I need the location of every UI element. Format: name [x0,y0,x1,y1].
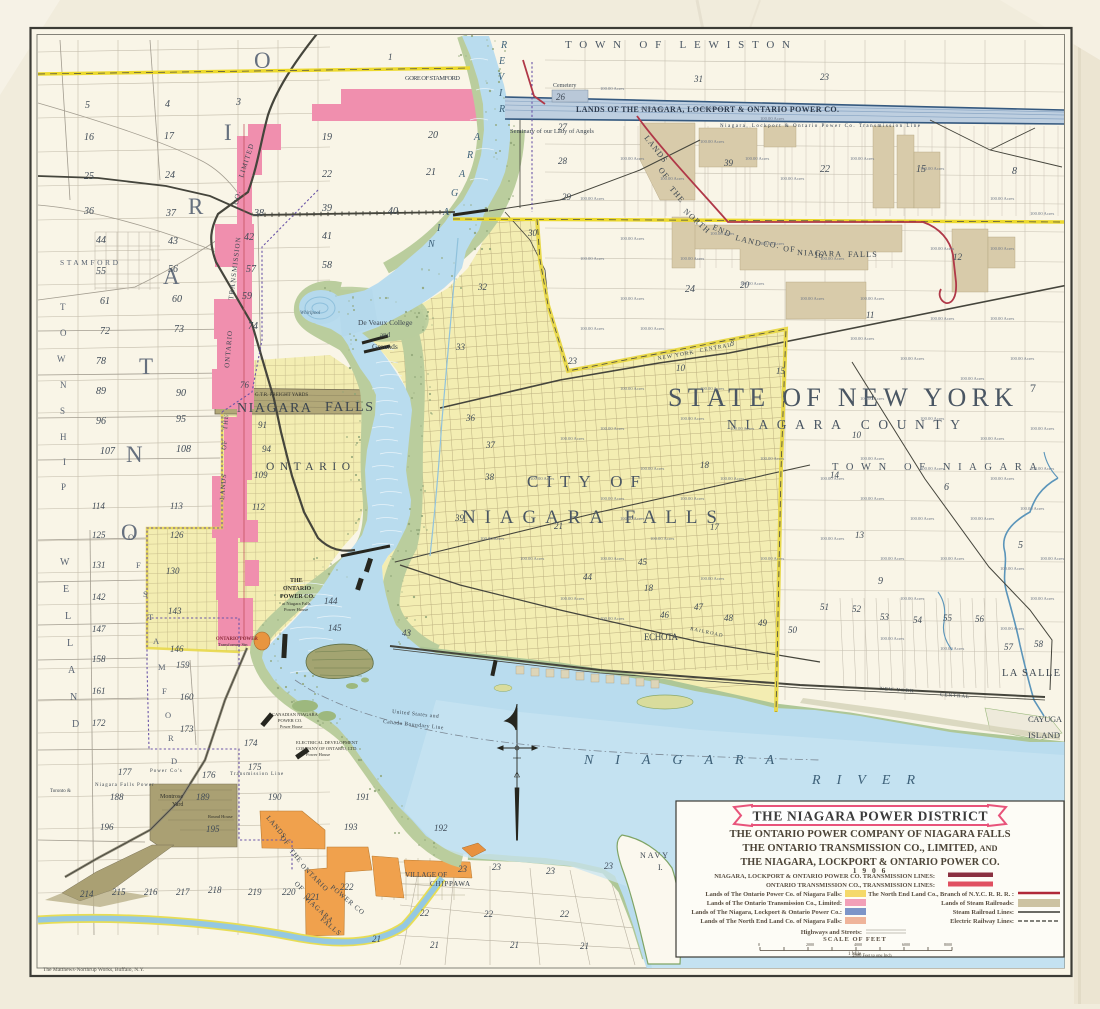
svg-text:Toronto &: Toronto & [50,789,71,794]
svg-text:100.00 Acres: 100.00 Acres [880,556,904,561]
svg-text:A: A [473,132,481,143]
svg-text:40: 40 [388,206,398,217]
svg-text:78: 78 [96,356,106,367]
svg-text:F: F [162,686,167,696]
svg-text:36: 36 [465,413,476,423]
svg-text:100.00 Acres: 100.00 Acres [1000,626,1024,631]
svg-text:A: A [153,636,160,646]
svg-text:21: 21 [554,521,563,531]
svg-text:5: 5 [1018,540,1023,551]
svg-text:100.00 Acres: 100.00 Acres [640,106,664,111]
svg-text:100.00 Acres: 100.00 Acres [620,386,644,391]
svg-text:100.00 Acres: 100.00 Acres [745,156,769,161]
svg-text:CHIPPAWA: CHIPPAWA [430,880,470,888]
svg-text:100.00 Acres: 100.00 Acres [960,376,984,381]
svg-text:N: N [60,380,67,390]
svg-text:24: 24 [685,284,695,295]
svg-text:100.00 Acres: 100.00 Acres [820,476,844,481]
svg-text:214: 214 [80,889,94,899]
svg-text:109: 109 [254,470,268,480]
svg-text:8000: 8000 [944,942,952,947]
svg-text:9: 9 [878,576,883,587]
svg-text:Power House: Power House [280,724,303,729]
svg-text:19: 19 [322,132,332,143]
svg-text:P: P [61,482,66,492]
svg-text:108: 108 [176,444,191,455]
svg-text:100.00 Acres: 100.00 Acres [700,576,724,581]
svg-text:217: 217 [176,887,190,897]
svg-text:4000: 4000 [854,942,862,947]
svg-text:Seminary of our Lady of Angels: Seminary of our Lady of Angels [510,128,594,135]
svg-text:I.: I. [658,863,663,872]
svg-text:28: 28 [558,156,568,166]
svg-text:190: 190 [268,792,282,802]
svg-text:33: 33 [455,342,466,352]
svg-text:38: 38 [253,208,264,219]
svg-text:100.00 Acres: 100.00 Acres [710,231,734,236]
svg-text:6000: 6000 [902,942,910,947]
svg-text:3: 3 [235,97,241,108]
svg-text:Yard: Yard [172,802,183,808]
svg-text:De Veaux College: De Veaux College [358,318,413,327]
svg-text:at Niagara Falls: at Niagara Falls [282,601,311,606]
svg-text:O: O [128,532,134,542]
svg-text:E: E [63,584,69,595]
svg-text:THE ONTARIO TRANSMISSION CO.,: THE ONTARIO TRANSMISSION CO., LIMITED, A… [743,842,998,854]
svg-text:100.00 Acres: 100.00 Acres [600,556,624,561]
svg-text:S: S [60,406,65,416]
svg-text:24: 24 [165,170,175,181]
svg-text:20: 20 [428,130,438,141]
svg-text:100.00 Acres: 100.00 Acres [680,416,704,421]
svg-text:21: 21 [510,940,519,950]
svg-text:2000 Feet to one Inch: 2000 Feet to one Inch [852,953,892,958]
svg-text:174: 174 [244,738,258,748]
svg-text:21: 21 [580,941,589,951]
svg-text:22: 22 [322,169,332,180]
svg-text:44: 44 [583,572,593,582]
svg-text:Power Co's: Power Co's [150,769,183,774]
svg-text:22: 22 [484,909,494,919]
svg-text:73: 73 [174,324,184,335]
svg-text:2000: 2000 [806,942,814,947]
svg-text:100.00 Acres: 100.00 Acres [480,536,504,541]
svg-text:72: 72 [100,326,110,337]
svg-text:R: R [498,104,505,115]
svg-text:100.00 Acres: 100.00 Acres [920,416,944,421]
svg-text:Highways and Streets:: Highways and Streets: [801,929,862,936]
svg-text:23: 23 [492,862,502,872]
svg-text:27: 27 [558,122,568,132]
svg-text:H: H [60,432,67,442]
svg-text:POWER CO.: POWER CO. [280,594,315,600]
svg-text:23: 23 [820,72,830,82]
svg-text:126: 126 [170,530,184,540]
svg-text:221: 221 [306,892,320,902]
svg-text:130: 130 [166,566,180,576]
svg-text:100.00 Acres: 100.00 Acres [760,241,784,246]
svg-text:215: 215 [112,887,126,897]
svg-text:76: 76 [240,380,250,390]
svg-text:L: L [67,638,73,649]
svg-text:195: 195 [206,824,220,834]
svg-text:100.00 Acres: 100.00 Acres [980,436,1004,441]
svg-text:146: 146 [170,644,184,654]
svg-text:100.00 Acres: 100.00 Acres [990,316,1014,321]
svg-text:R: R [168,733,174,743]
svg-text:25: 25 [84,171,94,182]
svg-text:100.00 Acres: 100.00 Acres [580,256,604,261]
svg-text:Lands of The North End Land Co: Lands of The North End Land Co. of Niaga… [700,918,842,925]
svg-text:188: 188 [110,792,124,802]
svg-text:100.00 Acres: 100.00 Acres [740,281,764,286]
svg-text:100.00 Acres: 100.00 Acres [970,516,994,521]
svg-text:N: N [70,692,77,703]
svg-text:147: 147 [92,624,106,634]
svg-text:21: 21 [372,934,381,944]
svg-text:Power House: Power House [306,752,330,757]
svg-text:100.00 Acres: 100.00 Acres [680,256,704,261]
svg-text:THE: THE [222,414,230,430]
svg-text:Transformer Stn: Transformer Stn [218,642,248,647]
svg-text:100.00 Acres: 100.00 Acres [860,396,884,401]
svg-text:55: 55 [943,613,953,623]
svg-text:W: W [57,354,66,364]
svg-text:A: A [458,169,466,180]
svg-text:ISLAND: ISLAND [1028,730,1060,740]
svg-text:100.00 Acres: 100.00 Acres [920,166,944,171]
svg-text:O: O [254,48,271,73]
svg-text:22: 22 [820,164,830,175]
svg-text:32: 32 [477,282,488,292]
svg-text:142: 142 [92,592,106,602]
svg-text:100.00 Acres: 100.00 Acres [620,156,644,161]
svg-text:100.00 Acres: 100.00 Acres [860,456,884,461]
svg-text:100.00 Acres: 100.00 Acres [660,176,684,181]
svg-text:56: 56 [975,614,985,624]
svg-text:100.00 Acres: 100.00 Acres [600,616,624,621]
svg-text:6: 6 [944,482,949,493]
svg-text:177: 177 [118,767,132,777]
svg-text:100.00 Acres: 100.00 Acres [650,536,674,541]
svg-text:100.00 Acres: 100.00 Acres [900,356,924,361]
svg-text:57: 57 [246,264,257,275]
svg-text:8: 8 [730,339,734,348]
svg-text:56: 56 [168,264,178,275]
svg-text:4: 4 [165,99,170,110]
svg-text:144: 144 [324,596,338,606]
svg-text:Transmission Line: Transmission Line [230,772,284,777]
svg-text:49: 49 [758,618,768,628]
svg-text:100.00 Acres: 100.00 Acres [1030,596,1054,601]
svg-text:159: 159 [176,660,190,670]
svg-text:31: 31 [693,74,703,84]
svg-text:1: 1 [388,52,393,62]
svg-text:18: 18 [700,460,710,470]
svg-text:100.00 Acres: 100.00 Acres [1030,211,1054,216]
svg-text:12: 12 [953,252,963,262]
svg-text:THE ONTARIO POWER COMPANY OF N: THE ONTARIO POWER COMPANY OF NIAGARA FAL… [730,828,1011,840]
svg-text:T: T [139,354,153,379]
svg-text:W: W [60,557,70,568]
svg-text:100.00 Acres: 100.00 Acres [640,326,664,331]
svg-text:Lands of The Ontario Transmiss: Lands of The Ontario Transmission Co., L… [707,900,842,907]
svg-text:39: 39 [723,158,734,168]
svg-text:ELECTRICAL DEVELOPMENT: ELECTRICAL DEVELOPMENT [296,740,358,745]
svg-text:13: 13 [855,530,865,540]
svg-text:58: 58 [1034,639,1044,649]
svg-text:51: 51 [820,602,829,612]
svg-text:100.00 Acres: 100.00 Acres [760,456,784,461]
svg-text:191: 191 [356,792,370,802]
svg-text:I: I [63,457,66,467]
svg-text:ECHOTA: ECHOTA [644,632,679,642]
svg-text:Electric Railway Lines:: Electric Railway Lines: [950,918,1014,925]
svg-text:189: 189 [196,792,210,802]
svg-text:LA SALLE: LA SALLE [1002,668,1060,679]
svg-text:173: 173 [180,724,194,734]
svg-text:CANADIAN NIAGARA: CANADIAN NIAGARA [272,712,319,717]
svg-text:100.00 Acres: 100.00 Acres [760,556,784,561]
svg-text:74: 74 [248,321,258,332]
svg-text:15: 15 [776,366,786,376]
svg-text:17: 17 [164,131,175,142]
svg-text:113: 113 [170,501,183,511]
svg-text:100.00 Acres: 100.00 Acres [860,296,884,301]
svg-text:Round House: Round House [208,814,233,819]
svg-text:100.00 Acres: 100.00 Acres [990,196,1014,201]
svg-text:29: 29 [562,192,572,202]
svg-text:10: 10 [852,430,862,440]
svg-text:100.00 Acres: 100.00 Acres [580,196,604,201]
svg-text:21: 21 [430,940,439,950]
svg-text:100.00 Acres: 100.00 Acres [620,516,644,521]
svg-text:Lands of Steam Railroads:: Lands of Steam Railroads: [941,900,1014,907]
svg-text:60: 60 [172,294,182,305]
svg-text:89: 89 [96,386,106,397]
svg-text:100.00 Acres: 100.00 Acres [930,316,954,321]
svg-text:T: T [148,612,154,622]
svg-text:23: 23 [568,356,578,366]
svg-text:196: 196 [100,822,114,832]
svg-text:D: D [171,756,177,766]
svg-text:41: 41 [322,231,332,242]
svg-text:N: N [427,239,436,250]
svg-text:100.00 Acres: 100.00 Acres [910,516,934,521]
svg-text:53: 53 [880,612,890,622]
svg-text:100.00 Acres: 100.00 Acres [560,596,584,601]
svg-text:47: 47 [694,602,704,612]
svg-text:114: 114 [92,501,105,511]
svg-text:CAYUGA: CAYUGA [1028,714,1063,724]
svg-text:61: 61 [100,296,110,307]
svg-text:D: D [72,719,79,730]
svg-text:ONTARIO TRANSMISSION CO., TRAN: ONTARIO TRANSMISSION CO., TRANSMISSION L… [766,882,935,889]
svg-text:100.00 Acres: 100.00 Acres [1000,566,1024,571]
svg-text:0: 0 [758,942,760,947]
svg-text:54: 54 [913,615,923,625]
svg-text:143: 143 [168,606,182,616]
svg-text:100.00 Acres: 100.00 Acres [1030,466,1054,471]
svg-text:112: 112 [252,502,265,512]
svg-text:L: L [65,611,71,622]
svg-text:43: 43 [402,628,412,638]
svg-text:17: 17 [710,522,720,532]
svg-text:100.00 Acres: 100.00 Acres [520,556,544,561]
svg-text:and: and [380,331,391,339]
svg-text:G.T.R. FREIGHT YARDS: G.T.R. FREIGHT YARDS [255,393,308,398]
svg-text:43: 43 [168,236,178,247]
svg-text:T: T [60,302,66,312]
svg-text:Lands of The Ontario Power Co.: Lands of The Ontario Power Co. of Niagar… [705,891,842,898]
svg-text:100.00 Acres: 100.00 Acres [860,496,884,501]
svg-text:57: 57 [1004,642,1014,652]
svg-text:158: 158 [92,654,106,664]
svg-text:218: 218 [208,885,222,895]
svg-text:Cemetery: Cemetery [553,83,576,89]
svg-text:193: 193 [344,822,358,832]
svg-text:100.00 Acres: 100.00 Acres [640,466,664,471]
svg-text:Niagara Falls Power: Niagara Falls Power [95,783,155,788]
svg-text:44: 44 [96,235,106,246]
svg-text:216: 216 [144,887,158,897]
svg-text:OF: OF [221,439,229,450]
svg-text:100.00 Acres: 100.00 Acres [1020,506,1044,511]
svg-text:E: E [498,56,505,67]
svg-text:100.00 Acres: 100.00 Acres [530,476,554,481]
svg-text:42: 42 [244,232,254,243]
svg-text:90: 90 [176,388,186,399]
svg-text:5: 5 [85,100,90,111]
svg-text:94: 94 [262,444,272,454]
svg-text:VILLAGE OF: VILLAGE OF [405,871,447,879]
svg-text:58: 58 [322,260,332,271]
svg-text:A: A [68,665,76,676]
svg-text:N: N [126,442,143,467]
svg-text:100.00 Acres: 100.00 Acres [1030,426,1054,431]
svg-text:OF: OF [783,244,796,254]
svg-text:52: 52 [852,604,862,614]
svg-text:100.00 Acres: 100.00 Acres [620,236,644,241]
svg-text:10: 10 [676,363,686,373]
svg-text:36: 36 [83,206,94,217]
svg-text:THE NIAGARA POWER DISTRICT: THE NIAGARA POWER DISTRICT [753,809,988,824]
svg-text:125: 125 [92,530,106,540]
svg-text:222: 222 [340,882,354,892]
svg-text:S: S [143,589,148,599]
svg-text:59: 59 [242,291,252,302]
svg-text:100.00 Acres: 100.00 Acres [800,296,824,301]
svg-text:23: 23 [458,864,468,874]
svg-text:100.00 Acres: 100.00 Acres [930,246,954,251]
svg-text:175: 175 [248,762,262,772]
svg-text:R: R [500,40,507,51]
svg-text:18: 18 [644,583,654,593]
svg-text:100.00 Acres: 100.00 Acres [700,106,724,111]
svg-text:M: M [158,662,166,672]
svg-text:23: 23 [604,861,614,871]
svg-text:100.00 Acres: 100.00 Acres [700,386,724,391]
svg-text:100.00 Acres: 100.00 Acres [850,156,874,161]
svg-text:NIAGARA: NIAGARA [237,401,312,416]
svg-text:161: 161 [92,686,106,696]
svg-text:100.00 Acres: 100.00 Acres [600,426,624,431]
svg-text:91: 91 [258,420,267,430]
svg-text:The North End Land Co., Branch: The North End Land Co., Branch of N.Y.C.… [868,891,1014,898]
svg-text:23: 23 [546,866,556,876]
svg-text:7: 7 [1030,381,1036,395]
svg-text:172: 172 [92,718,106,728]
svg-text:Grounds: Grounds [372,342,398,351]
svg-text:39: 39 [321,203,332,214]
svg-text:100.00 Acres: 100.00 Acres [820,256,844,261]
svg-text:100.00 Acres: 100.00 Acres [730,426,754,431]
svg-text:POWER CO.: POWER CO. [278,718,302,723]
svg-text:G: G [451,188,458,199]
svg-text:22: 22 [420,908,430,918]
svg-text:100.00 Acres: 100.00 Acres [850,336,874,341]
svg-text:The Matthews-Northrup Works, B: The Matthews-Northrup Works, Buffalo, N.… [43,966,145,973]
svg-text:100.00 Acres: 100.00 Acres [940,556,964,561]
svg-text:O: O [60,328,67,338]
svg-text:48: 48 [724,613,734,623]
svg-text:I: I [224,120,232,145]
svg-text:100.00 Acres: 100.00 Acres [620,296,644,301]
svg-text:100.00 Acres: 100.00 Acres [990,246,1014,251]
svg-text:O: O [165,710,171,720]
svg-text:R: R [188,194,204,219]
svg-text:160: 160 [180,692,194,702]
svg-text:I: I [498,88,503,99]
svg-text:176: 176 [202,770,216,780]
svg-text:100.00 Acres: 100.00 Acres [700,139,724,144]
svg-text:100.00 Acres: 100.00 Acres [940,646,964,651]
svg-text:Montrose: Montrose [160,794,183,800]
svg-text:11: 11 [866,310,874,320]
svg-text:I: I [436,223,441,234]
svg-text:21: 21 [426,167,436,178]
svg-text:8: 8 [1012,166,1017,177]
svg-text:100.00 Acres: 100.00 Acres [880,636,904,641]
svg-text:37: 37 [165,208,177,219]
svg-text:FALLS: FALLS [848,250,878,259]
svg-text:107: 107 [100,446,116,457]
svg-text:22: 22 [560,909,570,919]
svg-text:NAVY: NAVY [640,851,668,860]
svg-text:95: 95 [176,414,186,425]
svg-text:50: 50 [788,625,798,635]
svg-text:100.00 Acres: 100.00 Acres [1040,556,1064,561]
svg-text:100.00 Acres: 100.00 Acres [760,116,784,121]
svg-text:100.00 Acres: 100.00 Acres [920,466,944,471]
svg-text:26: 26 [556,92,566,102]
svg-text:100.00 Acres: 100.00 Acres [580,326,604,331]
svg-text:220: 220 [282,887,296,897]
svg-text:45: 45 [638,557,648,567]
svg-text:100.00 Acres: 100.00 Acres [720,476,744,481]
svg-text:46: 46 [660,610,670,620]
svg-text:NIAGARA, LOCKPORT & ONTARIO PO: NIAGARA, LOCKPORT & ONTARIO POWER CO. TR… [714,873,935,880]
svg-text:38: 38 [484,472,495,482]
svg-text:THE: THE [290,578,303,584]
svg-text:Power House: Power House [284,607,308,612]
svg-text:100.00 Acres: 100.00 Acres [600,86,624,91]
svg-text:100.00 Acres: 100.00 Acres [600,496,624,501]
svg-text:100.00 Acres: 100.00 Acres [780,176,804,181]
svg-text:96: 96 [96,416,106,427]
svg-text:100.00 Acres: 100.00 Acres [680,496,704,501]
svg-text:100.00 Acres: 100.00 Acres [560,436,584,441]
